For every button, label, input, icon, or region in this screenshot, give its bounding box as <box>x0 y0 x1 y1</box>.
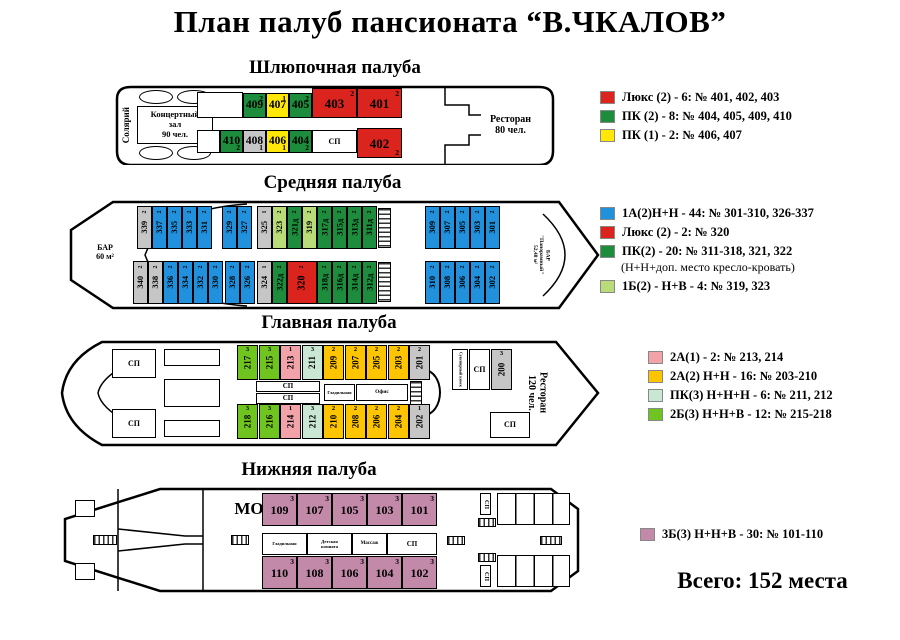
cabin-number: 203 <box>394 356 403 370</box>
stairwell-box <box>164 420 220 437</box>
legend-color-chip <box>640 528 655 541</box>
capacity-badge: 2 <box>277 266 283 269</box>
capacity-badge: 2 <box>277 211 283 214</box>
cabin-number: 308 <box>443 276 452 289</box>
capacity-badge: 2 <box>322 211 328 214</box>
sp-room: СП <box>256 381 320 392</box>
capacity-badge: 2 <box>354 347 357 354</box>
cabin-108[interactable]: 1083 <box>297 556 332 589</box>
capacity-badge: 2 <box>350 90 354 98</box>
ironing-room: Гладильная <box>262 533 307 555</box>
lifeboat <box>139 146 173 160</box>
cabin-number: 322д <box>275 274 284 291</box>
capacity-badge: 2 <box>460 266 466 269</box>
legend-text: ПК(2) - 20: № 311-318, 321, 322 <box>622 244 792 259</box>
legend-entry: 3Б(3) Н+Н+В - 30: № 101-110 <box>640 527 823 542</box>
capacity-badge: 2 <box>352 211 358 214</box>
legend-entry: Люкс (2) - 2: № 320 <box>600 225 814 240</box>
cabin-number: 200 <box>497 363 506 377</box>
cabin-number: 215 <box>265 356 274 370</box>
legend-entry: Люкс (2) - 6: № 401, 402, 403 <box>600 90 792 105</box>
stairs <box>478 553 496 562</box>
cabin-number: 330 <box>211 276 220 289</box>
cabin-number: 204 <box>394 415 403 429</box>
cabin-204[interactable]: 2042 <box>388 404 409 439</box>
stairs <box>378 208 391 248</box>
capacity-badge: 2 <box>305 144 309 152</box>
sp-room: СП <box>312 130 357 153</box>
cabin-324[interactable]: 3241 <box>257 261 272 304</box>
sp-room: СП <box>490 412 530 438</box>
deck-title-middle: Средняя палуба <box>65 172 600 194</box>
cabin-320[interactable]: 3202 <box>287 261 317 304</box>
cabin-302[interactable]: 3022 <box>485 261 500 304</box>
cabin-215[interactable]: 2153 <box>259 345 280 380</box>
stairs <box>447 536 465 545</box>
cabin-207[interactable]: 2072 <box>345 345 366 380</box>
legend-text: ПК(3) Н+Н+Н - 6: № 211, 212 <box>670 388 833 403</box>
cabin-106[interactable]: 1063 <box>332 556 367 589</box>
legend-lower-deck: 3Б(3) Н+Н+В - 30: № 101-110 <box>640 527 823 546</box>
capacity-badge: 3 <box>325 495 329 503</box>
sp-room: СП <box>480 565 491 587</box>
capacity-badge: 1 <box>289 406 292 413</box>
legend-entry: 2А(2) Н+Н - 16: № 203-210 <box>648 369 833 384</box>
cabin-number: 315д <box>335 219 344 236</box>
cabin-312д[interactable]: 312д2 <box>362 261 377 304</box>
capacity-badge: 2 <box>352 266 358 269</box>
cabin-319[interactable]: 3192 <box>302 206 317 249</box>
cabin-110[interactable]: 1103 <box>262 556 297 589</box>
capacity-badge: 2 <box>157 211 163 214</box>
capacity-badge: 3 <box>360 495 364 503</box>
crew-cabins <box>497 555 570 587</box>
legend-text: 2А(2) Н+Н - 16: № 203-210 <box>670 369 817 384</box>
capacity-badge: 2 <box>292 211 298 214</box>
cabin-310[interactable]: 3102 <box>425 261 440 304</box>
capacity-badge: 2 <box>187 211 193 214</box>
capacity-badge: 2 <box>142 211 148 214</box>
capacity-badge: 1 <box>289 347 292 354</box>
stairs <box>378 262 391 302</box>
legend-text: 1А(2)Н+Н - 44: № 301-310, 326-337 <box>622 206 814 221</box>
cabin-403[interactable]: 4032 <box>312 88 357 118</box>
cabin-number: 337 <box>155 221 164 234</box>
capacity-badge: 1 <box>282 95 286 103</box>
capacity-badge: 2 <box>236 144 240 152</box>
cabin-number: 335 <box>170 221 179 234</box>
cabin-104[interactable]: 1043 <box>367 556 402 589</box>
solarium-label: Солярий <box>118 99 134 151</box>
capacity-badge: 3 <box>311 406 314 413</box>
cabin-210[interactable]: 2102 <box>323 404 344 439</box>
cabin-325[interactable]: 3251 <box>257 206 272 249</box>
capacity-badge: 2 <box>337 211 343 214</box>
cabin-213[interactable]: 2131 <box>280 345 301 380</box>
capacity-badge: 2 <box>490 266 496 269</box>
cabin-336[interactable]: 3362 <box>163 261 178 304</box>
cabin-number: 205 <box>372 356 381 370</box>
cabin-323[interactable]: 3232 <box>272 206 287 249</box>
capacity-badge: 2 <box>227 211 233 214</box>
cabin-number: 302 <box>488 276 497 289</box>
cabin-216[interactable]: 2163 <box>259 404 280 439</box>
capacity-badge: 2 <box>305 95 309 103</box>
capacity-badge: 3 <box>360 558 364 566</box>
capacity-badge: 2 <box>299 266 305 269</box>
cabin-322д[interactable]: 322д2 <box>272 261 287 304</box>
cabin-307[interactable]: 3072 <box>440 206 455 249</box>
cabin-304[interactable]: 3042 <box>470 261 485 304</box>
cabin-303[interactable]: 3032 <box>470 206 485 249</box>
capacity-badge: 2 <box>375 347 378 354</box>
cabin-214[interactable]: 2141 <box>280 404 301 439</box>
ship-middle-deck: БАР 60 м²БАР "Панорамный" 52,48 м²339233… <box>65 200 600 310</box>
capacity-badge: 2 <box>354 406 357 413</box>
stairs <box>93 535 117 545</box>
capacity-badge: 2 <box>430 266 436 269</box>
capacity-badge: 2 <box>183 266 189 269</box>
capacity-badge: 2 <box>153 266 159 269</box>
page-title: План палуб пансионата “В.ЧКАЛОВ” <box>0 4 900 40</box>
legend-middle-deck: 1А(2)Н+Н - 44: № 301-310, 326-337Люкс (2… <box>600 206 814 298</box>
legend-color-chip <box>600 207 615 220</box>
cabin-number: 103 <box>376 504 394 516</box>
capacity-badge: 2 <box>445 266 451 269</box>
cabin-number: 108 <box>306 567 324 579</box>
legend-text: ПК (1) - 2: № 406, 407 <box>622 128 742 143</box>
cabin-333[interactable]: 3332 <box>182 206 197 249</box>
cabin-410[interactable]: 4102 <box>220 130 243 153</box>
cabin-number: 336 <box>166 276 175 289</box>
cabin-number: 313д <box>350 219 359 236</box>
capacity-badge: 2 <box>418 347 421 354</box>
stairwell-box <box>164 349 220 366</box>
capacity-badge: 2 <box>307 211 313 214</box>
capacity-badge: 1 <box>418 406 421 413</box>
cabin-102[interactable]: 1023 <box>402 556 437 589</box>
cabin-number: 314д <box>350 274 359 291</box>
cabin-202[interactable]: 2021 <box>409 404 430 439</box>
cabin-315д[interactable]: 315д2 <box>332 206 347 249</box>
cabin-number: 320 <box>297 275 307 290</box>
sp-room: СП <box>387 533 437 555</box>
cabin-318д[interactable]: 318д2 <box>317 261 332 304</box>
capacity-badge: 1 <box>282 144 286 152</box>
cabin-number: 214 <box>286 415 295 429</box>
cabin-number: 327 <box>240 221 249 234</box>
cabin-209[interactable]: 2092 <box>323 345 344 380</box>
cabin-number: 403 <box>325 97 345 110</box>
cabin-number: 109 <box>271 504 289 516</box>
cabin-101[interactable]: 1013 <box>402 493 437 526</box>
capacity-badge: 2 <box>395 90 399 98</box>
legend-color-chip <box>648 408 663 421</box>
cabin-number: 301 <box>488 221 497 234</box>
bar-label: БАР 60 м² <box>81 238 129 266</box>
capacity-badge: 2 <box>198 266 204 269</box>
cabin-334[interactable]: 3342 <box>178 261 193 304</box>
legend-color-chip <box>600 91 615 104</box>
capacity-badge: 2 <box>430 211 436 214</box>
legend-text: Люкс (2) - 2: № 320 <box>622 225 729 240</box>
ship-lower-deck: МОГладильнаяДетская комнатаМассажСПСПСП1… <box>35 487 583 593</box>
capacity-badge: 2 <box>475 211 481 214</box>
legend-color-chip <box>600 129 615 142</box>
legend-entry: ПК(2) - 20: № 311-318, 321, 322 <box>600 244 814 259</box>
legend-entry: ПК(3) Н+Н+Н - 6: № 211, 212 <box>648 388 833 403</box>
capacity-badge: 2 <box>230 266 236 269</box>
legend-main-deck: 2А(1) - 2: № 213, 2142А(2) Н+Н - 16: № 2… <box>648 350 833 426</box>
cabin-327[interactable]: 3272 <box>237 206 252 249</box>
cabin-number: 216 <box>265 415 274 429</box>
stairs <box>231 535 249 545</box>
capacity-badge: 3 <box>246 347 249 354</box>
capacity-badge: 2 <box>332 347 335 354</box>
ship-main-deck: СПСПСПСПГладильнаяОфисСувенирный киоскСП… <box>58 340 600 447</box>
cabin-326[interactable]: 3262 <box>240 261 255 304</box>
capacity-badge: 3 <box>430 558 434 566</box>
capacity-badge: 3 <box>290 495 294 503</box>
deck-plan-page: План палуб пансионата “В.ЧКАЛОВ” Шлюпочн… <box>0 0 900 640</box>
cabin-212[interactable]: 2123 <box>302 404 323 439</box>
service-box <box>197 92 243 118</box>
cabin-340[interactable]: 3402 <box>133 261 148 304</box>
stairwell-box <box>164 379 220 407</box>
cabin-number: 202 <box>415 415 424 429</box>
capacity-badge: 1 <box>259 144 263 152</box>
cabin-305[interactable]: 3052 <box>455 206 470 249</box>
cabin-218[interactable]: 2183 <box>237 404 258 439</box>
legend-text: (Н+Н+доп. место кресло-кровать) <box>621 260 795 275</box>
stairs <box>478 518 496 527</box>
cabin-203[interactable]: 2032 <box>388 345 409 380</box>
cabin-number: 317д <box>320 219 329 236</box>
cabin-number: 402 <box>370 137 390 150</box>
cabin-number: 208 <box>351 415 360 429</box>
capacity-badge: 2 <box>242 211 248 214</box>
cabin-405[interactable]: 4052 <box>289 93 312 118</box>
crew-cabins <box>497 493 570 525</box>
cabin-314д[interactable]: 314д2 <box>347 261 362 304</box>
cabin-number: 212 <box>308 415 317 429</box>
cabin-107[interactable]: 1073 <box>297 493 332 526</box>
service-box <box>197 130 220 153</box>
cabin-number: 209 <box>329 356 338 370</box>
cabin-401[interactable]: 4012 <box>357 88 402 118</box>
cabin-338[interactable]: 3382 <box>148 261 163 304</box>
cabin-number: 325 <box>260 221 269 234</box>
cabin-404[interactable]: 4042 <box>289 130 312 153</box>
legend-color-chip <box>600 226 615 239</box>
cabin-205[interactable]: 2052 <box>366 345 387 380</box>
cabin-number: 318д <box>320 274 329 291</box>
capacity-badge: 2 <box>395 149 399 157</box>
cabin-407[interactable]: 4071 <box>266 93 289 118</box>
cabin-330[interactable]: 3302 <box>208 261 223 304</box>
cabin-301[interactable]: 3012 <box>485 206 500 249</box>
lifeboat <box>139 90 173 104</box>
cabin-206[interactable]: 2062 <box>366 404 387 439</box>
massage-room: Массаж <box>352 533 387 555</box>
capacity-badge: 2 <box>332 406 335 413</box>
cabin-number: 334 <box>181 276 190 289</box>
capacity-badge: 2 <box>168 266 174 269</box>
cabin-number: 304 <box>473 276 482 289</box>
capacity-badge: 2 <box>367 211 373 214</box>
legend-text: 3Б(3) Н+Н+В - 30: № 101-110 <box>662 527 823 542</box>
cabin-number: 307 <box>443 221 452 234</box>
capacity-badge: 3 <box>395 558 399 566</box>
capacity-badge: 2 <box>397 347 400 354</box>
deck-title-boat: Шлюпочная палуба <box>115 57 555 79</box>
cabin-309[interactable]: 3092 <box>425 206 440 249</box>
cabin-number: 306 <box>458 276 467 289</box>
capacity-badge: 2 <box>213 266 219 269</box>
cabin-number: 312д <box>365 274 374 291</box>
sp-room: СП <box>256 393 320 404</box>
panoramic-bar-label: БАР "Панорамный" 52,48 м² <box>523 220 559 290</box>
cabin-number: 201 <box>415 356 424 370</box>
capacity-badge: 3 <box>325 558 329 566</box>
deck-title-main: Главная палуба <box>58 312 600 334</box>
cabin-number: 333 <box>185 221 194 234</box>
cabin-number: 316д <box>335 274 344 291</box>
cabin-number: 104 <box>376 567 394 579</box>
cabin-335[interactable]: 3352 <box>167 206 182 249</box>
deck-title-lower: Нижняя палуба <box>35 459 583 481</box>
cabin-337[interactable]: 3372 <box>152 206 167 249</box>
ship-boat-deck: СолярийКонцертный зал 90 чел.СПРесторан … <box>115 85 555 165</box>
legend-entry: 2Б(3) Н+Н+В - 12: № 215-218 <box>648 407 833 422</box>
cabin-number: 102 <box>411 567 429 579</box>
legend-entry: (Н+Н+доп. место кресло-кровать) <box>600 260 814 275</box>
capacity-badge: 3 <box>395 495 399 503</box>
cabin-217[interactable]: 2173 <box>237 345 258 380</box>
cabin-103[interactable]: 1033 <box>367 493 402 526</box>
legend-text: 2Б(3) Н+Н+В - 12: № 215-218 <box>670 407 832 422</box>
cabin-211[interactable]: 2113 <box>302 345 323 380</box>
cabin-number: 311д <box>365 219 374 236</box>
stairs <box>540 536 562 545</box>
capacity-badge: 3 <box>500 351 503 358</box>
capacity-badge: 2 <box>490 211 496 214</box>
capacity-badge: 2 <box>475 266 481 269</box>
legend-color-chip <box>600 245 615 258</box>
cabin-406[interactable]: 4061 <box>266 130 289 153</box>
cabin-313д[interactable]: 313д2 <box>347 206 362 249</box>
cabin-number: 340 <box>136 276 145 289</box>
cabin-109[interactable]: 1093 <box>262 493 297 526</box>
sp-room: СП <box>112 409 156 438</box>
cabin-number: 217 <box>243 356 252 370</box>
legend-text: 2А(1) - 2: № 213, 214 <box>670 350 783 365</box>
capacity-badge: 2 <box>259 95 263 103</box>
restaurant-label: Ресторан 80 чел. <box>473 110 548 140</box>
stairs <box>410 381 422 405</box>
cabin-306[interactable]: 3062 <box>455 261 470 304</box>
legend-entry: 1А(2)Н+Н - 44: № 301-310, 326-337 <box>600 206 814 221</box>
legend-color-chip <box>648 389 663 402</box>
kids-room: Детская комната <box>307 533 352 555</box>
legend-boat-deck: Люкс (2) - 6: № 401, 402, 403ПК (2) - 8:… <box>600 90 792 147</box>
cabin-316д[interactable]: 316д2 <box>332 261 347 304</box>
cabin-311д[interactable]: 311д2 <box>362 206 377 249</box>
cabin-number: 321д <box>290 219 299 236</box>
legend-entry: 2А(1) - 2: № 213, 214 <box>648 350 833 365</box>
cabin-408[interactable]: 4081 <box>243 130 266 153</box>
cabin-409[interactable]: 4092 <box>243 93 266 118</box>
cabin-308[interactable]: 3082 <box>440 261 455 304</box>
cabin-number: 319 <box>305 221 314 234</box>
cabin-number: 329 <box>225 221 234 234</box>
cabin-321д[interactable]: 321д2 <box>287 206 302 249</box>
cabin-317д[interactable]: 317д2 <box>317 206 332 249</box>
cabin-328[interactable]: 3282 <box>225 261 240 304</box>
capacity-badge: 2 <box>245 266 251 269</box>
cabin-number: 211 <box>308 356 317 369</box>
cabin-329[interactable]: 3292 <box>222 206 237 249</box>
cabin-number: 210 <box>329 415 338 429</box>
cabin-number: 305 <box>458 221 467 234</box>
cabin-number: 206 <box>372 415 381 429</box>
capacity-badge: 2 <box>138 266 144 269</box>
cabin-105[interactable]: 1053 <box>332 493 367 526</box>
capacity-badge: 2 <box>172 211 178 214</box>
capacity-badge: 3 <box>268 347 271 354</box>
sp-room: СП <box>469 349 490 390</box>
office: Офис <box>356 384 408 401</box>
cabin-number: 401 <box>370 97 390 110</box>
cabin-number: 338 <box>151 276 160 289</box>
cabin-402[interactable]: 4022 <box>357 128 402 158</box>
legend-color-chip <box>600 110 615 123</box>
ironing-room: Гладильная <box>324 384 355 401</box>
legend-text: 1Б(2) - Н+В - 4: № 319, 323 <box>622 279 770 294</box>
cabin-208[interactable]: 2082 <box>345 404 366 439</box>
capacity-badge: 2 <box>202 211 208 214</box>
cabin-number: 213 <box>286 356 295 370</box>
cabin-number: 323 <box>275 221 284 234</box>
capacity-badge: 2 <box>367 266 373 269</box>
cabin-number: 331 <box>200 221 209 234</box>
sp-room: СП <box>112 349 156 378</box>
total-seats: Всего: 152 места <box>645 568 880 594</box>
capacity-badge: 3 <box>290 558 294 566</box>
legend-color-chip <box>600 280 615 293</box>
legend-color-chip <box>648 370 663 383</box>
cabin-number: 101 <box>411 504 429 516</box>
capacity-badge: 3 <box>268 406 271 413</box>
legend-text: Люкс (2) - 6: № 401, 402, 403 <box>622 90 779 105</box>
cabin-201[interactable]: 2012 <box>409 345 430 380</box>
cabin-number: 218 <box>243 415 252 429</box>
capacity-badge: 2 <box>397 406 400 413</box>
cabin-number: 303 <box>473 221 482 234</box>
sp-room: СП <box>480 493 491 515</box>
cabin-number: 107 <box>306 504 324 516</box>
cabin-200[interactable]: 2003 <box>491 349 512 390</box>
legend-entry: ПК (1) - 2: № 406, 407 <box>600 128 792 143</box>
cabin-number: 332 <box>196 276 205 289</box>
legend-text: ПК (2) - 8: № 404, 405, 409, 410 <box>622 109 792 124</box>
cabin-332[interactable]: 3322 <box>193 261 208 304</box>
cabin-number: 105 <box>341 504 359 516</box>
cabin-number: 106 <box>341 567 359 579</box>
cabin-331[interactable]: 3312 <box>197 206 212 249</box>
bow-compartment <box>75 500 95 517</box>
cabin-339[interactable]: 3392 <box>137 206 152 249</box>
